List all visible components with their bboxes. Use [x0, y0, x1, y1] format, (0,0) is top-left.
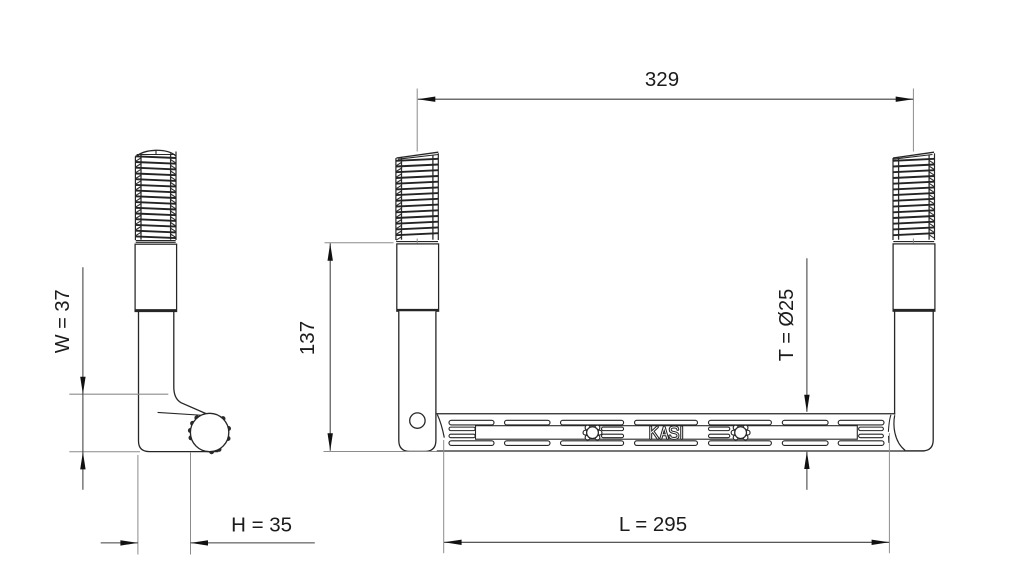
svg-text:137: 137 — [296, 321, 319, 355]
svg-text:329: 329 — [645, 68, 679, 91]
svg-text:W = 37: W = 37 — [52, 289, 74, 353]
svg-text:T = Ø25: T = Ø25 — [776, 289, 798, 361]
svg-text:L = 295: L = 295 — [619, 513, 687, 536]
svg-text:H = 35: H = 35 — [231, 514, 292, 537]
